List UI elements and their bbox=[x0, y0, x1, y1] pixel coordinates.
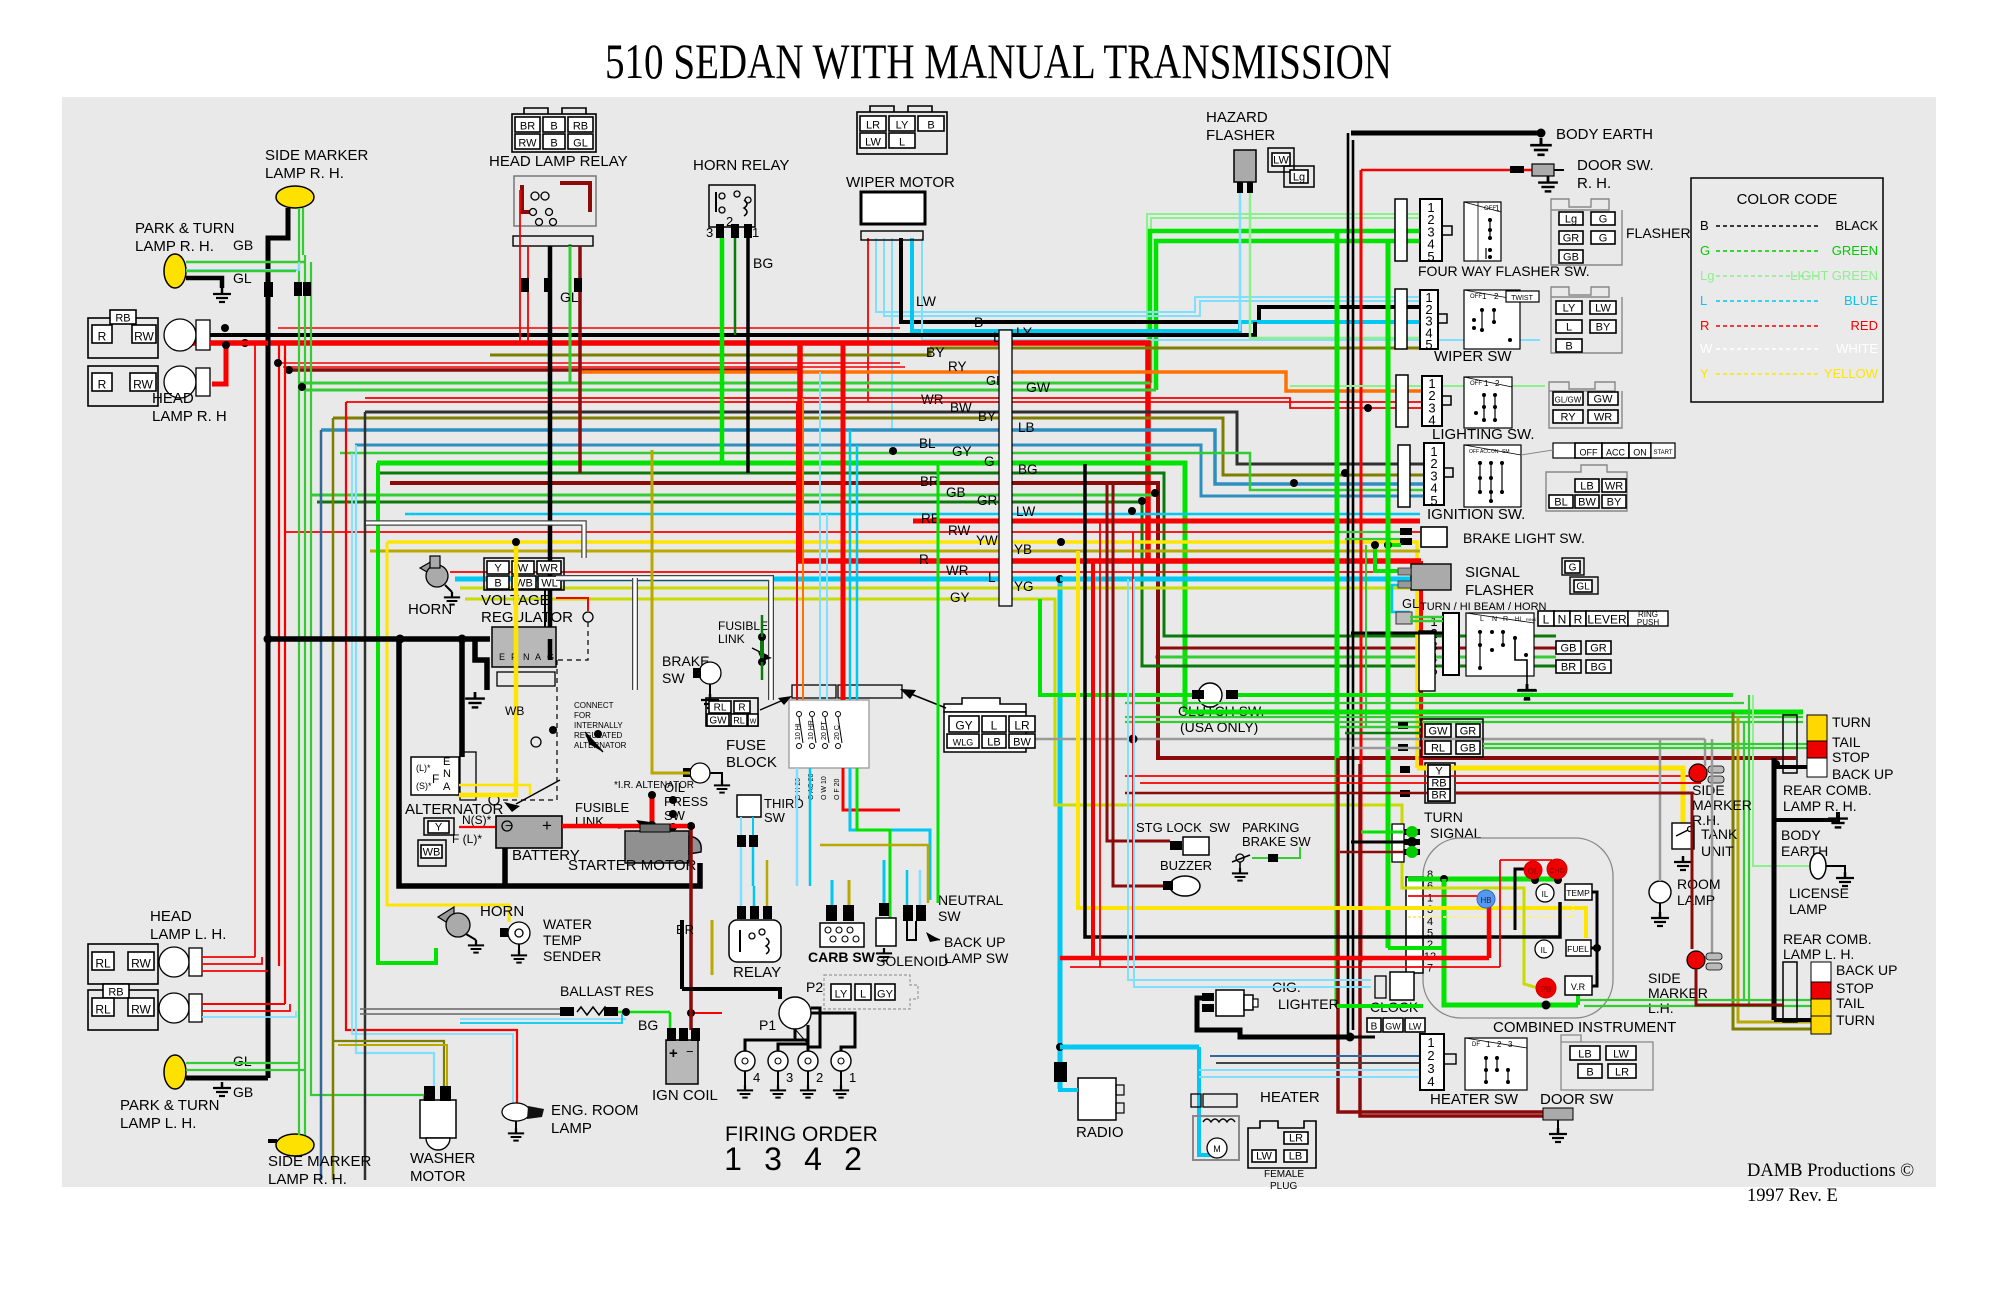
svg-text:BLACK: BLACK bbox=[1835, 218, 1878, 233]
svg-text:SW: SW bbox=[662, 670, 685, 686]
svg-text:A: A bbox=[535, 652, 541, 662]
svg-text:RL: RL bbox=[95, 957, 111, 971]
svg-text:GL: GL bbox=[1402, 596, 1419, 611]
svg-text:ROOM: ROOM bbox=[1677, 876, 1721, 892]
svg-text:LW: LW bbox=[1595, 303, 1611, 315]
svg-text:DOOR SW: DOOR SW bbox=[1540, 1091, 1614, 1108]
svg-text:PARK & TURN: PARK & TURN bbox=[135, 220, 234, 237]
svg-text:GW: GW bbox=[1429, 726, 1449, 738]
svg-text:5: 5 bbox=[1425, 337, 1432, 352]
svg-text:ACC: ACC bbox=[1606, 448, 1626, 458]
svg-text:BY: BY bbox=[926, 344, 945, 360]
svg-text:4: 4 bbox=[804, 1141, 822, 1177]
svg-text:TWIST: TWIST bbox=[1511, 295, 1533, 302]
svg-text:PLUG: PLUG bbox=[1270, 1181, 1297, 1192]
svg-text:HEAD: HEAD bbox=[150, 908, 192, 925]
svg-text:OFF: OFF bbox=[1580, 448, 1598, 458]
svg-text:LB: LB bbox=[1580, 481, 1593, 493]
svg-text:W: W bbox=[750, 719, 757, 726]
svg-text:BW: BW bbox=[1013, 737, 1031, 749]
svg-text:HEAD: HEAD bbox=[152, 390, 194, 407]
svg-text:1997 Rev. E: 1997 Rev. E bbox=[1747, 1186, 1838, 1206]
svg-text:GY: GY bbox=[877, 989, 894, 1001]
svg-text:GW: GW bbox=[1026, 379, 1051, 395]
svg-text:LIGHTER: LIGHTER bbox=[1278, 996, 1339, 1012]
svg-text:LAMP R. H.: LAMP R. H. bbox=[135, 238, 214, 255]
svg-text:1: 1 bbox=[752, 225, 759, 240]
svg-text:B: B bbox=[494, 578, 501, 590]
svg-text:GL: GL bbox=[233, 1053, 252, 1069]
svg-text:SIDE MARKER: SIDE MARKER bbox=[268, 1153, 372, 1170]
svg-text:BRAKE SW: BRAKE SW bbox=[1242, 834, 1311, 849]
svg-text:L: L bbox=[1480, 616, 1484, 623]
svg-text:Y: Y bbox=[435, 822, 443, 834]
svg-text:COMBINED INSTRUMENT: COMBINED INSTRUMENT bbox=[1493, 1019, 1676, 1036]
svg-text:TEMP: TEMP bbox=[1566, 888, 1590, 898]
svg-text:TURN: TURN bbox=[1424, 809, 1463, 825]
svg-text:OFF: OFF bbox=[1470, 294, 1482, 300]
svg-text:BODY EARTH: BODY EARTH bbox=[1556, 126, 1653, 143]
svg-text:LEVER: LEVER bbox=[1587, 613, 1627, 627]
svg-text:LR: LR bbox=[866, 120, 880, 132]
svg-text:YW: YW bbox=[976, 533, 998, 548]
svg-text:WR: WR bbox=[946, 563, 969, 578]
svg-text:R: R bbox=[1574, 613, 1583, 627]
svg-text:WL: WL bbox=[541, 578, 558, 590]
svg-text:A: A bbox=[443, 781, 451, 793]
svg-text:B: B bbox=[1586, 1067, 1593, 1079]
svg-text:DAMB Productions ©: DAMB Productions © bbox=[1747, 1161, 1914, 1181]
svg-text:RY: RY bbox=[1560, 412, 1576, 424]
svg-text:GB: GB bbox=[233, 237, 253, 253]
svg-text:BACK UP: BACK UP bbox=[1832, 766, 1893, 782]
svg-text:E: E bbox=[443, 756, 450, 768]
svg-text:LAMP: LAMP bbox=[1789, 901, 1827, 917]
svg-text:−: − bbox=[686, 1044, 694, 1059]
svg-text:GL: GL bbox=[233, 270, 252, 286]
svg-text:FUEL: FUEL bbox=[1567, 944, 1589, 954]
svg-text:LR: LR bbox=[1014, 719, 1030, 733]
svg-text:L: L bbox=[1700, 293, 1707, 308]
svg-text:1: 1 bbox=[1482, 292, 1487, 301]
svg-text:WATER: WATER bbox=[543, 916, 592, 932]
svg-text:RADIO: RADIO bbox=[1076, 1124, 1124, 1141]
svg-text:BY: BY bbox=[1607, 497, 1622, 509]
svg-text:LR: LR bbox=[1289, 1133, 1303, 1145]
svg-text:5: 5 bbox=[1427, 249, 1434, 264]
svg-text:1: 1 bbox=[1484, 379, 1489, 388]
svg-text:TURN: TURN bbox=[1832, 714, 1871, 730]
svg-text:WASHER: WASHER bbox=[410, 1150, 475, 1167]
svg-text:CHG: CHG bbox=[1549, 868, 1565, 875]
svg-text:N: N bbox=[1492, 616, 1497, 623]
svg-text:LW: LW bbox=[865, 137, 881, 149]
svg-text:RW: RW bbox=[133, 378, 153, 392]
svg-text:N: N bbox=[523, 652, 530, 662]
svg-text:RL: RL bbox=[714, 703, 727, 714]
svg-text:R: R bbox=[919, 552, 929, 567]
svg-text:BY: BY bbox=[978, 409, 996, 424]
svg-text:SIGNAL: SIGNAL bbox=[1465, 564, 1520, 581]
svg-text:STOP: STOP bbox=[1836, 980, 1874, 996]
svg-text:RELAY: RELAY bbox=[733, 964, 781, 981]
svg-text:Lg: Lg bbox=[1293, 172, 1305, 184]
svg-text:3: 3 bbox=[764, 1141, 782, 1177]
svg-text:B: B bbox=[550, 138, 557, 150]
svg-text:LAMP R. H.: LAMP R. H. bbox=[268, 1171, 347, 1188]
svg-text:PARKING: PARKING bbox=[1242, 820, 1300, 835]
svg-text:G: G bbox=[1700, 243, 1710, 258]
svg-text:LAMP SW: LAMP SW bbox=[944, 950, 1009, 966]
svg-text:R. H.: R. H. bbox=[1577, 175, 1611, 192]
svg-text:OIL: OIL bbox=[664, 780, 685, 795]
svg-text:BY: BY bbox=[1596, 322, 1611, 334]
svg-text:WR: WR bbox=[1605, 481, 1623, 493]
svg-text:LAMP L. H.: LAMP L. H. bbox=[1783, 946, 1854, 962]
svg-text:Y: Y bbox=[1700, 366, 1709, 381]
svg-text:INTERNALLY: INTERNALLY bbox=[574, 721, 623, 730]
svg-text:LW: LW bbox=[1273, 155, 1289, 167]
svg-text:RY: RY bbox=[948, 359, 967, 374]
svg-text:COLOR CODE: COLOR CODE bbox=[1737, 191, 1838, 208]
svg-text:+: + bbox=[542, 816, 552, 835]
svg-text:GB: GB bbox=[1561, 643, 1577, 655]
svg-text:WR: WR bbox=[540, 563, 558, 575]
svg-text:BODY: BODY bbox=[1781, 827, 1821, 843]
svg-text:BLUE: BLUE bbox=[1844, 293, 1878, 308]
svg-text:(L)*: (L)* bbox=[416, 763, 431, 773]
svg-text:ENG. ROOM: ENG. ROOM bbox=[551, 1102, 639, 1119]
svg-text:4: 4 bbox=[753, 1070, 760, 1085]
svg-text:SW: SW bbox=[1209, 820, 1231, 835]
svg-text:UNIT: UNIT bbox=[1701, 843, 1734, 859]
svg-text:TAIL: TAIL bbox=[1832, 734, 1861, 750]
svg-text:3: 3 bbox=[1508, 1040, 1513, 1049]
svg-text:LW: LW bbox=[916, 293, 937, 309]
svg-text:R.H.: R.H. bbox=[1692, 812, 1720, 828]
svg-text:LAMP: LAMP bbox=[551, 1120, 592, 1137]
svg-text:G: G bbox=[1599, 214, 1608, 226]
svg-text:R: R bbox=[1503, 616, 1508, 623]
svg-text:B: B bbox=[974, 314, 983, 330]
svg-text:BRAKE LIGHT SW.: BRAKE LIGHT SW. bbox=[1463, 530, 1585, 546]
svg-text:RL: RL bbox=[95, 1003, 111, 1017]
svg-text:HORN: HORN bbox=[480, 903, 524, 920]
svg-text:LINK: LINK bbox=[718, 632, 745, 646]
svg-text:R: R bbox=[98, 378, 107, 392]
svg-text:G: G bbox=[1599, 233, 1608, 245]
svg-text:REAR COMB.: REAR COMB. bbox=[1783, 931, 1872, 947]
svg-text:BR: BR bbox=[1431, 790, 1446, 802]
svg-text:RL: RL bbox=[1431, 743, 1445, 755]
svg-text:BACK UP: BACK UP bbox=[944, 934, 1005, 950]
svg-text:RB: RB bbox=[573, 121, 588, 133]
svg-text:2: 2 bbox=[1495, 379, 1500, 388]
svg-text:YB: YB bbox=[1014, 542, 1032, 557]
svg-text:GR: GR bbox=[977, 493, 998, 508]
svg-text:LICENSE: LICENSE bbox=[1789, 885, 1849, 901]
svg-text:2: 2 bbox=[1494, 292, 1499, 301]
svg-text:M: M bbox=[1213, 1144, 1221, 1154]
svg-text:LR: LR bbox=[1615, 1067, 1629, 1079]
svg-text:(S)*: (S)* bbox=[416, 781, 432, 791]
svg-text:MOTOR: MOTOR bbox=[410, 1168, 466, 1185]
svg-text:B: B bbox=[1565, 341, 1572, 353]
svg-text:L.H.: L.H. bbox=[1648, 1000, 1674, 1016]
svg-text:BW: BW bbox=[950, 400, 972, 415]
svg-text:+: + bbox=[669, 1045, 678, 1062]
svg-text:V.R: V.R bbox=[1571, 982, 1586, 992]
svg-text:L: L bbox=[860, 989, 866, 1001]
svg-text:BR: BR bbox=[676, 922, 694, 937]
svg-text:PARK & TURN: PARK & TURN bbox=[120, 1097, 219, 1114]
svg-text:DOOR SW.: DOOR SW. bbox=[1577, 157, 1654, 174]
svg-text:1: 1 bbox=[1427, 892, 1433, 904]
svg-text:N: N bbox=[443, 768, 451, 780]
svg-text:L: L bbox=[988, 570, 996, 585]
svg-text:RB: RB bbox=[1431, 778, 1446, 790]
svg-text:OFF: OFF bbox=[1470, 381, 1482, 387]
svg-text:Y: Y bbox=[494, 563, 502, 575]
svg-text:SIDE: SIDE bbox=[1648, 970, 1681, 986]
svg-text:LY: LY bbox=[835, 989, 848, 1001]
svg-text:BR: BR bbox=[920, 474, 939, 489]
svg-text:WHITE: WHITE bbox=[1836, 341, 1878, 356]
svg-text:BALLAST RES: BALLAST RES bbox=[560, 983, 654, 999]
svg-text:1: 1 bbox=[1495, 204, 1500, 213]
svg-text:RW: RW bbox=[134, 330, 154, 344]
svg-text:B: B bbox=[1371, 1022, 1378, 1033]
svg-text:P1: P1 bbox=[759, 1017, 776, 1033]
svg-text:Lg: Lg bbox=[1565, 214, 1577, 226]
svg-text:SENDER: SENDER bbox=[543, 948, 601, 964]
svg-text:OL: OL bbox=[1528, 867, 1539, 876]
svg-text:L: L bbox=[991, 719, 998, 733]
svg-text:HB: HB bbox=[1480, 896, 1491, 905]
svg-text:Lg: Lg bbox=[1700, 268, 1714, 283]
svg-text:MARKER: MARKER bbox=[1692, 797, 1752, 813]
svg-text:W: W bbox=[1700, 341, 1713, 356]
svg-text:LB: LB bbox=[1289, 1151, 1302, 1163]
svg-text:BG: BG bbox=[753, 255, 773, 271]
svg-text:SIDE: SIDE bbox=[1692, 782, 1725, 798]
svg-text:LW: LW bbox=[1256, 1151, 1272, 1163]
svg-text:HI: HI bbox=[1515, 617, 1521, 623]
svg-text:BUZZER: BUZZER bbox=[1160, 858, 1212, 873]
svg-text:R: R bbox=[1700, 318, 1709, 333]
svg-text:SW: SW bbox=[764, 810, 786, 825]
svg-text:PRESS: PRESS bbox=[664, 794, 708, 809]
svg-text:GW: GW bbox=[1594, 394, 1614, 406]
svg-text:B: B bbox=[1700, 218, 1709, 233]
svg-text:BG: BG bbox=[1591, 662, 1607, 674]
svg-text:FUSE: FUSE bbox=[726, 737, 766, 754]
svg-text:N: N bbox=[1558, 613, 1567, 627]
svg-text:3: 3 bbox=[1427, 904, 1433, 916]
svg-text:TURN: TURN bbox=[1836, 1012, 1875, 1028]
svg-text:W: W bbox=[518, 563, 529, 575]
svg-text:GB: GB bbox=[946, 485, 966, 500]
svg-text:IGN COIL: IGN COIL bbox=[652, 1087, 718, 1104]
svg-text:BW: BW bbox=[1578, 497, 1596, 509]
svg-text:WIPER MOTOR: WIPER MOTOR bbox=[846, 174, 955, 191]
svg-text:LAMP L. H.: LAMP L. H. bbox=[120, 1115, 196, 1132]
svg-text:LY: LY bbox=[1563, 303, 1576, 315]
svg-text:GR: GR bbox=[1590, 643, 1607, 655]
svg-text:YG: YG bbox=[1014, 579, 1034, 594]
svg-text:IGNITION SW.: IGNITION SW. bbox=[1427, 506, 1525, 523]
svg-text:TEMP: TEMP bbox=[543, 932, 582, 948]
svg-text:LAMP R. H.: LAMP R. H. bbox=[1783, 798, 1857, 814]
svg-text:GB: GB bbox=[1563, 252, 1579, 264]
svg-text:2: 2 bbox=[816, 1070, 823, 1085]
svg-text:P2: P2 bbox=[806, 979, 823, 995]
svg-text:1: 1 bbox=[849, 1070, 856, 1085]
svg-text:BL: BL bbox=[919, 436, 936, 451]
svg-text:O F 20: O F 20 bbox=[834, 778, 841, 800]
svg-text:RW: RW bbox=[518, 138, 537, 150]
svg-text:GL/GW: GL/GW bbox=[1555, 396, 1582, 405]
svg-text:LIGHT GREEN: LIGHT GREEN bbox=[1790, 268, 1878, 283]
svg-text:G: G bbox=[1569, 563, 1577, 574]
svg-text:HEAD LAMP RELAY: HEAD LAMP RELAY bbox=[489, 153, 628, 170]
svg-text:GL: GL bbox=[573, 138, 588, 150]
svg-text:LB: LB bbox=[987, 737, 1000, 749]
svg-text:TURN / HI BEAM / HORN: TURN / HI BEAM / HORN bbox=[1420, 601, 1547, 613]
svg-text:ON: ON bbox=[1633, 448, 1647, 458]
svg-text:WB: WB bbox=[423, 847, 441, 859]
svg-text:TAIL: TAIL bbox=[1836, 995, 1865, 1011]
svg-text:WLG: WLG bbox=[953, 738, 974, 748]
svg-text:WIPER SW: WIPER SW bbox=[1434, 348, 1512, 365]
svg-text:IL: IL bbox=[1542, 890, 1549, 899]
svg-text:GREEN: GREEN bbox=[1832, 243, 1878, 258]
svg-text:RB: RB bbox=[115, 313, 130, 325]
svg-text:LW: LW bbox=[1016, 504, 1036, 519]
svg-text:SM: SM bbox=[1502, 449, 1510, 455]
svg-text:STOP: STOP bbox=[1832, 749, 1870, 765]
svg-text:ACC: ACC bbox=[1480, 449, 1491, 455]
svg-text:1: 1 bbox=[724, 1141, 742, 1177]
svg-text:PB: PB bbox=[1541, 985, 1552, 994]
svg-text:START: START bbox=[1653, 450, 1672, 456]
svg-text:WR: WR bbox=[921, 392, 944, 407]
svg-text:IL: IL bbox=[1541, 946, 1548, 955]
svg-text:BACK UP: BACK UP bbox=[1836, 962, 1897, 978]
svg-text:GB: GB bbox=[1460, 743, 1476, 755]
svg-text:RL: RL bbox=[733, 716, 745, 726]
svg-text:PUSH: PUSH bbox=[1637, 618, 1659, 627]
svg-text:GW: GW bbox=[1385, 1022, 1401, 1032]
svg-text:RING: RING bbox=[1526, 617, 1536, 622]
svg-text:FLASHER: FLASHER bbox=[1626, 225, 1691, 241]
svg-text:GR: GR bbox=[1460, 726, 1477, 738]
svg-text:B: B bbox=[550, 121, 557, 133]
svg-text:BL: BL bbox=[1554, 497, 1567, 509]
svg-text:WR: WR bbox=[1594, 412, 1612, 424]
svg-text:1: 1 bbox=[1486, 1040, 1491, 1049]
svg-text:L: L bbox=[899, 137, 905, 149]
svg-text:BG: BG bbox=[638, 1017, 658, 1033]
svg-text:TANK: TANK bbox=[1701, 826, 1738, 842]
svg-text:CARB SW: CARB SW bbox=[808, 949, 876, 965]
svg-text:FEMALE: FEMALE bbox=[1264, 1169, 1304, 1180]
svg-text:RB: RB bbox=[108, 987, 123, 999]
svg-text:F (L)*: F (L)* bbox=[452, 832, 482, 846]
svg-text:YELLOW: YELLOW bbox=[1824, 366, 1879, 381]
svg-text:SOLENOID: SOLENOID bbox=[876, 953, 948, 969]
svg-text:HEATER SW: HEATER SW bbox=[1430, 1091, 1519, 1108]
svg-text:LW: LW bbox=[1613, 1049, 1629, 1061]
svg-text:GY: GY bbox=[952, 444, 972, 459]
svg-text:GB: GB bbox=[233, 1084, 253, 1100]
svg-text:MARKER: MARKER bbox=[1648, 985, 1708, 1001]
svg-text:G: G bbox=[984, 454, 995, 469]
svg-text:STARTER MOTOR: STARTER MOTOR bbox=[568, 857, 697, 874]
svg-text:SIDE MARKER: SIDE MARKER bbox=[265, 147, 369, 164]
svg-text:3: 3 bbox=[706, 225, 713, 240]
svg-text:WB: WB bbox=[505, 704, 524, 718]
svg-text:LAMP R. H: LAMP R. H bbox=[152, 408, 227, 425]
svg-text:R: R bbox=[738, 703, 745, 714]
svg-text:L: L bbox=[1566, 322, 1572, 334]
svg-text:LW: LW bbox=[1409, 1022, 1422, 1032]
svg-text:STG LOCK: STG LOCK bbox=[1136, 820, 1202, 835]
svg-text:BR: BR bbox=[1561, 662, 1576, 674]
svg-text:CONNECT: CONNECT bbox=[574, 701, 614, 710]
svg-text:RED: RED bbox=[1851, 318, 1878, 333]
svg-text:O W 10: O W 10 bbox=[821, 776, 828, 800]
svg-text:SW: SW bbox=[664, 808, 686, 823]
svg-text:F: F bbox=[432, 772, 439, 786]
svg-text:RW: RW bbox=[131, 1003, 151, 1017]
svg-text:510 SEDAN WITH MANUAL TRANSMIS: 510 SEDAN WITH MANUAL TRANSMISSION bbox=[605, 33, 1392, 89]
svg-text:Y: Y bbox=[1435, 766, 1443, 778]
svg-text:FLASHER: FLASHER bbox=[1206, 127, 1275, 144]
svg-text:LY: LY bbox=[896, 120, 909, 132]
svg-text:E: E bbox=[499, 652, 505, 662]
svg-text:LAMP R. H.: LAMP R. H. bbox=[265, 165, 344, 182]
svg-text:LIGHTING SW.: LIGHTING SW. bbox=[1432, 426, 1535, 443]
svg-text:GR: GR bbox=[1563, 233, 1580, 245]
svg-text:BG: BG bbox=[1018, 462, 1038, 477]
svg-text:NEUTRAL: NEUTRAL bbox=[938, 892, 1004, 908]
svg-text:REAR COMB.: REAR COMB. bbox=[1783, 782, 1872, 798]
svg-text:SW: SW bbox=[938, 908, 961, 924]
svg-text:7: 7 bbox=[1427, 963, 1433, 975]
svg-text:HEATER: HEATER bbox=[1260, 1089, 1320, 1106]
svg-text:DF: DF bbox=[1472, 1042, 1480, 1048]
svg-text:LAMP L. H.: LAMP L. H. bbox=[150, 926, 226, 943]
svg-text:RW: RW bbox=[131, 957, 151, 971]
svg-text:GL: GL bbox=[1576, 582, 1590, 593]
svg-text:L: L bbox=[1543, 613, 1550, 627]
svg-text:2: 2 bbox=[1497, 1040, 1502, 1049]
svg-text:LB: LB bbox=[1018, 420, 1035, 435]
svg-text:GW: GW bbox=[709, 716, 727, 727]
svg-text:GY: GY bbox=[955, 719, 972, 733]
svg-text:FUSIBLE: FUSIBLE bbox=[718, 619, 768, 633]
svg-text:HORN: HORN bbox=[408, 601, 452, 618]
svg-text:HORN RELAY: HORN RELAY bbox=[693, 157, 789, 174]
svg-text:HAZARD: HAZARD bbox=[1206, 109, 1268, 126]
svg-text:RW: RW bbox=[948, 523, 971, 538]
svg-text:LB: LB bbox=[1578, 1049, 1591, 1061]
svg-text:FLASHER: FLASHER bbox=[1465, 582, 1534, 599]
svg-text:ON: ON bbox=[1491, 449, 1499, 455]
svg-text:2: 2 bbox=[844, 1141, 862, 1177]
svg-text:REGULATOR: REGULATOR bbox=[481, 609, 573, 626]
